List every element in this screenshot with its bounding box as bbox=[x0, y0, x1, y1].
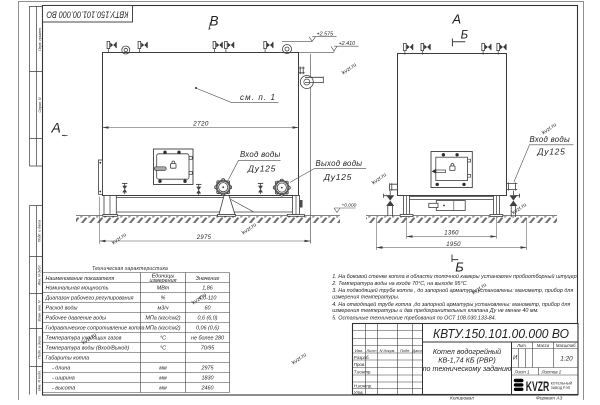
svg-text:Н.контр.: Н.контр. bbox=[354, 383, 373, 388]
svg-text:МПа (кгс/см2): МПа (кгс/см2) bbox=[145, 326, 180, 332]
svg-text:- высота: - высота bbox=[52, 386, 75, 392]
svg-text:измерения: измерения bbox=[150, 278, 177, 284]
svg-text:Выход воды: Выход воды bbox=[316, 159, 363, 168]
svg-text:60: 60 bbox=[205, 306, 211, 312]
svg-text:МВт: МВт bbox=[157, 286, 170, 292]
svg-text:Лист: Лист bbox=[365, 348, 377, 353]
svg-text:Взам. инв. N: Взам. инв. N bbox=[37, 300, 41, 321]
svg-text:Ду125: Ду125 bbox=[537, 147, 566, 157]
svg-text:Перв. примен.: Перв. примен. bbox=[38, 27, 42, 51]
svg-text:+2.410: +2.410 bbox=[339, 41, 356, 47]
svg-text:Ду125: Ду125 bbox=[247, 164, 276, 174]
svg-text:Лист 1: Лист 1 bbox=[514, 369, 531, 374]
svg-text:+2.575: +2.575 bbox=[317, 31, 335, 37]
svg-text:Т.контр.: Т.контр. bbox=[354, 369, 372, 374]
svg-text:Подп.: Подп. bbox=[400, 348, 410, 353]
svg-text:А: А bbox=[451, 11, 461, 26]
svg-text:- длина: - длина bbox=[52, 366, 70, 372]
svg-text:Листов 2: Листов 2 bbox=[541, 369, 562, 374]
svg-text:Инв. N дубл.: Инв. N дубл. bbox=[37, 265, 41, 286]
svg-text:Подп. и дата: Подп. и дата bbox=[37, 220, 41, 243]
svg-text:Лит.: Лит. bbox=[516, 343, 527, 348]
svg-text:Подп. и дата: Подп. и дата bbox=[37, 336, 41, 359]
svg-text:м3/ч: м3/ч bbox=[158, 306, 169, 312]
svg-text:Расход воды: Расход воды bbox=[46, 306, 78, 312]
svg-text:не более 280: не более 280 bbox=[191, 336, 224, 342]
svg-text:по техническому заданию: по техническому заданию bbox=[423, 364, 512, 373]
svg-text:измерения температуры и два пр: измерения температуры и два предохраните… bbox=[332, 308, 538, 314]
svg-text:Гидравлическое сопротивление к: Гидравлическое сопротивление котла bbox=[46, 326, 145, 332]
svg-text:2720: 2720 bbox=[192, 120, 209, 127]
svg-text:4,0-110: 4,0-110 bbox=[199, 296, 217, 302]
svg-text:Номинальная мощность: Номинальная мощность bbox=[46, 286, 109, 292]
svg-text:°С: °С bbox=[160, 346, 166, 352]
svg-text:КВТУ.150.101.00.000 ВО: КВТУ.150.101.00.000 ВО bbox=[433, 326, 569, 341]
svg-text:А: А bbox=[51, 120, 61, 136]
svg-text:Рабочее давление воды: Рабочее давление воды bbox=[46, 316, 106, 322]
svg-text:МПа (кгс/см2): МПа (кгс/см2) bbox=[145, 316, 180, 322]
svg-text:Ду125: Ду125 bbox=[323, 172, 352, 182]
svg-text:°С: °С bbox=[160, 336, 166, 342]
svg-text:Пров.: Пров. bbox=[354, 362, 366, 367]
svg-text:ЗАВОД РЭП: ЗАВОД РЭП bbox=[551, 386, 571, 390]
svg-text:N докум.: N докум. bbox=[380, 348, 396, 353]
svg-text:2460: 2460 bbox=[201, 386, 214, 392]
svg-text:Температура уходящих газов: Температура уходящих газов bbox=[46, 336, 122, 342]
svg-text:Значение: Значение bbox=[196, 276, 220, 282]
svg-text:0,06 (0,6): 0,06 (0,6) bbox=[196, 326, 219, 332]
svg-text:И: И bbox=[513, 356, 518, 362]
svg-text:Наименование показателя: Наименование показателя bbox=[46, 276, 115, 282]
svg-text:Разраб.: Разраб. bbox=[354, 355, 370, 360]
svg-text:1:20: 1:20 bbox=[560, 356, 573, 363]
svg-text:Б: Б bbox=[461, 29, 469, 41]
svg-text:KVZR: KVZR bbox=[526, 378, 550, 394]
svg-text:Техническая характеристика: Техническая характеристика bbox=[92, 266, 168, 272]
svg-text:1. На боковой стенке котла в: 1. На боковой стенке котла в области топ… bbox=[332, 273, 576, 280]
svg-text:0,6 (6,0): 0,6 (6,0) bbox=[197, 316, 217, 322]
svg-text:Формат А3: Формат А3 bbox=[536, 395, 563, 400]
svg-text:КВТУ.150.101.00.000 ВО: КВТУ.150.101.00.000 ВО bbox=[46, 8, 128, 19]
svg-text:4. На отводящей трубе котла ,: 4. На отводящей трубе котла ,до запорной… bbox=[332, 301, 570, 308]
svg-text:Б: Б bbox=[455, 259, 464, 274]
svg-text:Диапазон рабочего регулировани: Диапазон рабочего регулирования bbox=[45, 296, 134, 302]
svg-text:КОТЕЛЬНЫЙ: КОТЕЛЬНЫЙ bbox=[551, 381, 573, 385]
svg-text:Инв. N подл.: Инв. N подл. bbox=[37, 370, 41, 391]
svg-text:70/95: 70/95 bbox=[201, 346, 215, 352]
svg-text:Изм.: Изм. bbox=[355, 348, 363, 353]
svg-text:2975: 2975 bbox=[201, 366, 215, 372]
svg-text:Масштаб: Масштаб bbox=[556, 343, 576, 348]
svg-text:измерения температуры.: измерения температуры. bbox=[332, 294, 399, 300]
svg-text:мм: мм bbox=[159, 366, 167, 372]
svg-text:1,86: 1,86 bbox=[202, 286, 213, 292]
svg-text:- ширина: - ширина bbox=[52, 376, 75, 382]
svg-text:2. Температура воды на входе: 2. Температура воды на входе 70°С, на вы… bbox=[331, 281, 468, 287]
svg-text:мм: мм bbox=[159, 386, 167, 392]
svg-text:Справ. N: Справ. N bbox=[38, 97, 42, 112]
svg-text:мм: мм bbox=[159, 376, 167, 382]
svg-text:Вход воды: Вход воды bbox=[240, 150, 281, 159]
svg-text:1360: 1360 bbox=[444, 231, 459, 237]
svg-text:2975: 2975 bbox=[196, 235, 212, 241]
svg-text:Температура воды (Вход/Выход): Температура воды (Вход/Выход) bbox=[46, 346, 130, 352]
svg-text:%: % bbox=[161, 296, 166, 302]
svg-text:см. п. 1: см. п. 1 bbox=[240, 93, 276, 102]
svg-text:Масса: Масса bbox=[537, 343, 550, 348]
svg-text:1950: 1950 bbox=[446, 242, 461, 248]
svg-text:Вход воды: Вход воды bbox=[530, 135, 571, 144]
svg-text:Копировал: Копировал bbox=[450, 395, 474, 400]
svg-text:В: В bbox=[210, 13, 219, 28]
svg-text:5. Остальные технические треб: 5. Остальные технические требования по О… bbox=[332, 315, 496, 321]
svg-text:Габариты котла: Габариты котла bbox=[46, 356, 90, 362]
svg-text:3. На подводящей трубе котла: 3. На подводящей трубе котла , до запорн… bbox=[332, 287, 573, 294]
svg-text:1830: 1830 bbox=[202, 376, 214, 382]
svg-text:+0.000: +0.000 bbox=[342, 203, 357, 209]
svg-text:Дата: Дата bbox=[411, 348, 423, 353]
svg-text:Утв.: Утв. bbox=[354, 390, 364, 395]
